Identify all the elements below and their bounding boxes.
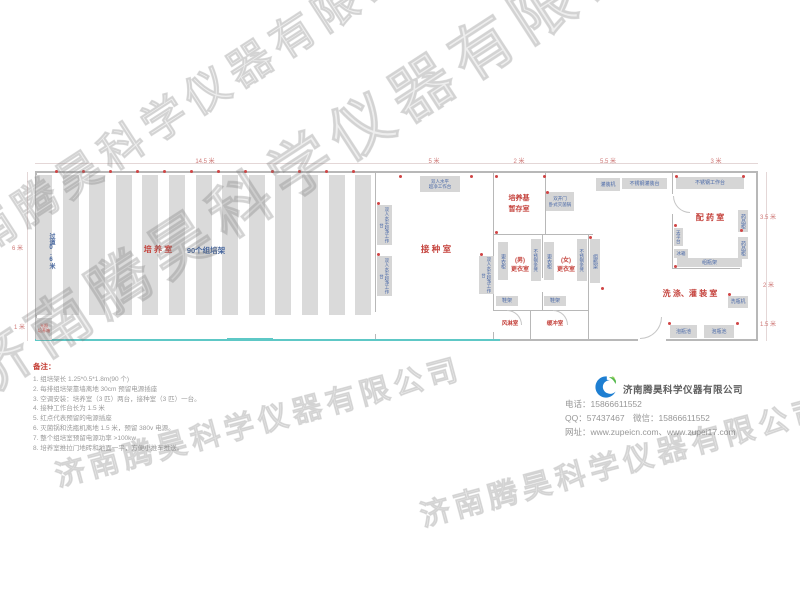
dimension-label: 5.5 米 bbox=[600, 156, 616, 165]
equipment-label: 培养箱 bbox=[38, 329, 50, 334]
room-label: 洗 涤、灌 装 室 bbox=[663, 288, 718, 300]
power-outlet-dot bbox=[742, 175, 745, 178]
equipment-box: 不锈钢条凳 bbox=[531, 239, 541, 281]
dimension-line bbox=[27, 172, 28, 341]
culture-rack-column bbox=[116, 175, 132, 315]
power-outlet-dot bbox=[495, 231, 498, 234]
power-outlet-dot bbox=[543, 175, 546, 178]
dimension-label: 1.5 米 bbox=[760, 319, 776, 328]
wall-segment bbox=[756, 171, 758, 341]
wall-segment bbox=[375, 172, 376, 312]
power-outlet-dot bbox=[674, 265, 677, 268]
equipment-box: 鞋架 bbox=[496, 296, 518, 306]
dimension-label: 2 米 bbox=[763, 280, 774, 289]
company-contact: 电话：15866611552QQ：57437467 微信：15866611552… bbox=[565, 397, 736, 439]
equipment-label: 卧式灭菌锅 bbox=[549, 202, 572, 207]
room-label-line: 更衣室 bbox=[557, 266, 575, 275]
room-label-line: 洗 涤、灌 装 室 bbox=[663, 288, 718, 300]
power-outlet-dot bbox=[352, 170, 355, 173]
wall-segment bbox=[530, 310, 531, 340]
culture-rack-column bbox=[329, 175, 345, 315]
wall-segment bbox=[493, 234, 593, 235]
wall-segment bbox=[672, 214, 673, 268]
power-outlet-dot bbox=[495, 175, 498, 178]
room-label: 配 药 室 bbox=[696, 212, 724, 224]
door-arc bbox=[553, 310, 568, 325]
equipment-box: 冰箱 bbox=[674, 249, 688, 258]
equipment-box: 泡瓶池 bbox=[670, 325, 697, 338]
power-outlet-dot bbox=[675, 175, 678, 178]
dimension-label: 3 米 bbox=[710, 156, 721, 165]
room-label-line: 更衣室 bbox=[511, 266, 529, 275]
power-outlet-dot bbox=[136, 170, 139, 173]
room-label-line: 暂存室 bbox=[509, 205, 530, 216]
company-name: 济南腾昊科学仪器有限公司 bbox=[623, 382, 743, 396]
equipment-box: 双开门卧式灭菌锅 bbox=[546, 192, 574, 211]
power-outlet-dot bbox=[163, 170, 166, 173]
equipment-label: 不锈钢灌装台 bbox=[629, 181, 659, 187]
room-label: 培养基暂存室 bbox=[509, 194, 530, 215]
room-label-line: (女) bbox=[557, 257, 575, 266]
room-label-line: 接 种 室 bbox=[421, 243, 451, 256]
power-outlet-dot bbox=[271, 170, 274, 173]
power-outlet-dot bbox=[546, 191, 549, 194]
equipment-label: 泡瓶池 bbox=[711, 329, 726, 335]
room-label-line: 培 养 室 bbox=[144, 244, 172, 256]
company-block: 济南腾昊科学仪器有限公司 电话：15866611552QQ：57437467 微… bbox=[565, 372, 785, 444]
power-outlet-dot bbox=[190, 170, 193, 173]
wall-segment bbox=[542, 292, 543, 310]
power-outlet-dot bbox=[470, 175, 473, 178]
equipment-box: 不锈钢条凳 bbox=[577, 239, 587, 281]
room-label-line: 配 药 室 bbox=[696, 212, 724, 224]
note-item: 8. 培养室推拉门地砖和地面一平，方便小推车推送。 bbox=[33, 444, 201, 454]
floor-plan: 双人水平超净工作台双人水平超净工作台双人水平超净工作台双人水平超净工作台双开门卧… bbox=[0, 0, 800, 600]
room-label: (男)更衣室 bbox=[511, 257, 529, 275]
note-item: 6. 灭菌锅和洗瓶机离地 1.5 米，预留 380v 电源。 bbox=[33, 424, 201, 434]
wall-segment bbox=[500, 339, 638, 341]
power-outlet-dot bbox=[109, 170, 112, 173]
equipment-box: 药品柜 bbox=[738, 237, 748, 259]
equipment-box: 更衣柜 bbox=[544, 242, 554, 280]
equipment-box: 组瓶架 bbox=[677, 258, 742, 267]
equipment-box: 天平台 bbox=[674, 228, 683, 246]
power-outlet-dot bbox=[740, 229, 743, 232]
note-item: 5. 红点代表预留的电源插座 bbox=[33, 414, 201, 424]
equipment-box: 双人水平超净工作台 bbox=[377, 256, 392, 296]
equipment-box: 双人水平超净工作台 bbox=[479, 256, 494, 294]
note-item: 3. 空调安装：培养室（3 匹）两台，接种室（3 匹）一台。 bbox=[33, 395, 201, 405]
design-drawing: 济南腾昊科学仪器有限公司 济南腾昊科学仪器有限公司 济南腾昊科学仪器有限公司 济… bbox=[0, 0, 800, 600]
equipment-box: 泡瓶池 bbox=[704, 325, 734, 338]
culture-rack-column bbox=[89, 175, 105, 315]
power-outlet-dot bbox=[377, 253, 380, 256]
equipment-box: 组瓶架 bbox=[590, 239, 600, 283]
power-outlet-dot bbox=[736, 322, 739, 325]
wall-segment bbox=[666, 339, 758, 341]
notes-list: 1. 组培架长 1.25*0.5*1.8m(90 个)2. 每排组培架靠墙离地 … bbox=[33, 375, 201, 453]
culture-rack-column bbox=[249, 175, 265, 315]
note-item: 7. 整个组培室预留电源功率 >100kw bbox=[33, 434, 201, 444]
culture-rack-column bbox=[63, 175, 79, 315]
equipment-box: 双人水平超净工作台 bbox=[377, 205, 392, 245]
power-outlet-dot bbox=[399, 175, 402, 178]
equipment-label: 组瓶架 bbox=[702, 260, 717, 266]
note-item: 1. 组培架长 1.25*0.5*1.8m(90 个) bbox=[33, 375, 201, 385]
dimension-label: 5 米 bbox=[428, 156, 439, 165]
room-label: 过道0.6米 bbox=[48, 233, 54, 269]
door-arc bbox=[507, 310, 522, 325]
room-label: (女)更衣室 bbox=[557, 257, 575, 275]
wall-segment bbox=[672, 172, 673, 194]
power-outlet-dot bbox=[82, 170, 85, 173]
dimension-line bbox=[766, 172, 767, 341]
company-contact-line: 电话：15866611552 bbox=[565, 397, 736, 411]
equipment-label: 泡瓶池 bbox=[676, 329, 691, 335]
room-label-line: 培养基 bbox=[509, 194, 530, 205]
wall-segment bbox=[588, 234, 589, 341]
power-outlet-dot bbox=[601, 287, 604, 290]
equipment-box: 鞋架 bbox=[544, 296, 566, 306]
room-label: 90个组培架 bbox=[187, 245, 225, 256]
equipment-label: 鞋架 bbox=[502, 298, 512, 304]
culture-rack-column bbox=[302, 175, 318, 315]
equipment-box: 更衣柜 bbox=[498, 242, 508, 280]
power-outlet-dot bbox=[377, 202, 380, 205]
power-outlet-dot bbox=[325, 170, 328, 173]
room-label: 培 养 室 bbox=[144, 244, 172, 256]
note-item: 4. 接种工作台长为 1.5 米 bbox=[33, 404, 201, 414]
wall-segment bbox=[672, 268, 740, 269]
equipment-box: 双人水平超净工作台 bbox=[420, 176, 460, 192]
power-outlet-dot bbox=[244, 170, 247, 173]
sliding-door-line bbox=[227, 338, 273, 341]
room-label-line: 过道0.6米 bbox=[48, 233, 54, 269]
power-outlet-dot bbox=[480, 253, 483, 256]
power-outlet-dot bbox=[668, 322, 671, 325]
equipment-box: 不锈钢工作台 bbox=[676, 177, 744, 189]
room-label-line: 90个组培架 bbox=[187, 245, 225, 256]
power-outlet-dot bbox=[589, 236, 592, 239]
equipment-label: 洗瓶机 bbox=[730, 299, 745, 305]
room-label: 接 种 室 bbox=[421, 243, 451, 256]
culture-rack-column bbox=[355, 175, 371, 315]
equipment-label: 灌装机 bbox=[600, 182, 615, 188]
dimension-label: 3.5 米 bbox=[760, 212, 776, 221]
power-outlet-dot bbox=[55, 170, 58, 173]
dimension-label: 2 米 bbox=[513, 156, 524, 165]
dimension-label: 14.5 米 bbox=[195, 156, 214, 165]
equipment-label: 超净工作台 bbox=[429, 184, 452, 189]
dimension-label: 1 米 bbox=[14, 322, 25, 331]
power-outlet-dot bbox=[298, 170, 301, 173]
company-contact-line: QQ：57437467 微信：15866611552 bbox=[565, 411, 736, 425]
wall-segment bbox=[35, 171, 758, 173]
door-arc bbox=[673, 196, 690, 213]
notes-block: 备注： 1. 组培架长 1.25*0.5*1.8m(90 个)2. 每排组培架靠… bbox=[33, 361, 201, 453]
company-contact-line: 网址：www.zupeicn.com、www.zupei17.com bbox=[565, 425, 736, 439]
equipment-box: 灌装机 bbox=[596, 178, 620, 191]
power-outlet-dot bbox=[674, 224, 677, 227]
room-label-line: (男) bbox=[511, 257, 529, 266]
dimension-label: 6 米 bbox=[12, 243, 23, 252]
equipment-label: 不锈钢工作台 bbox=[695, 180, 725, 186]
culture-rack-column bbox=[275, 175, 291, 315]
equipment-label: 冰箱 bbox=[677, 251, 686, 256]
equipment-box: 洗瓶机 bbox=[728, 296, 748, 308]
notes-title: 备注： bbox=[33, 361, 201, 372]
equipment-box: 光照培养箱 bbox=[36, 318, 52, 340]
power-outlet-dot bbox=[728, 293, 731, 296]
door-arc bbox=[640, 317, 662, 339]
equipment-box: 不锈钢灌装台 bbox=[622, 178, 667, 189]
wall-segment bbox=[542, 234, 543, 278]
equipment-label: 鞋架 bbox=[550, 298, 560, 304]
power-outlet-dot bbox=[217, 170, 220, 173]
note-item: 2. 每排组培架靠墙离地 30cm 预留电源插座 bbox=[33, 385, 201, 395]
